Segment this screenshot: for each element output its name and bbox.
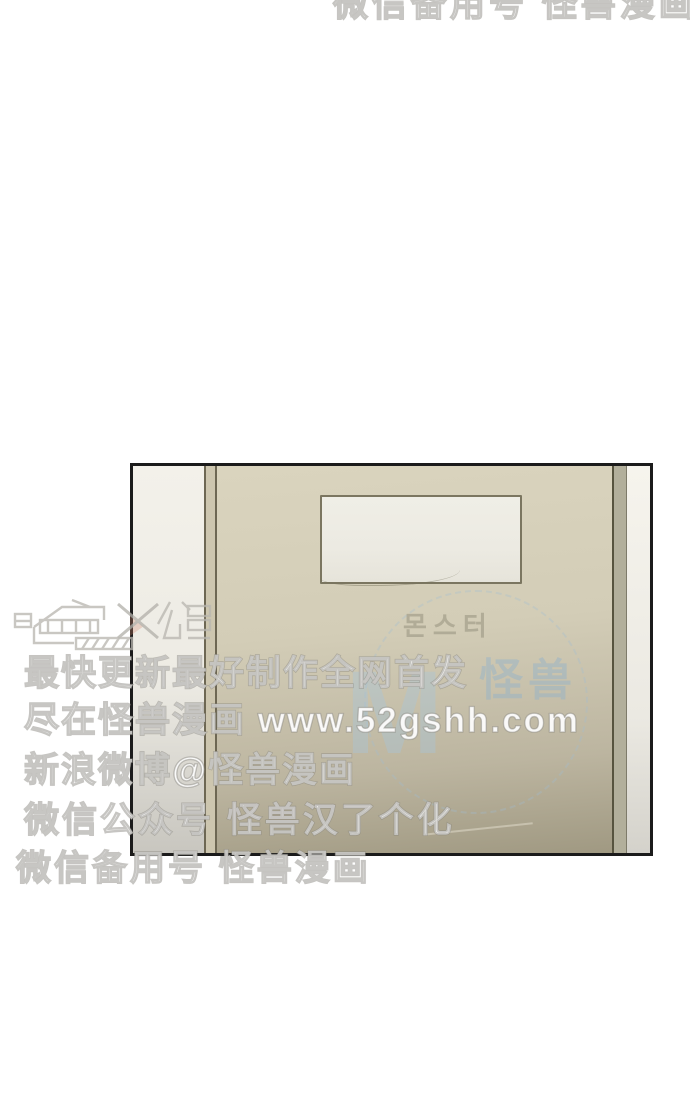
watermark-line-3: 新浪微博@怪兽漫画 — [24, 752, 356, 791]
comic-page: 微信备用号 怪兽漫画 몬스터 M 怪兽 — [0, 0, 690, 1104]
watermark-line-4: 微信公众号 怪兽汉了个化 — [24, 802, 455, 841]
watermark-line-1: 最快更新最好制作全网首发 — [24, 655, 468, 694]
watermark-line-2: 尽在怪兽漫画 www.52gshh.com — [24, 702, 580, 741]
sign-reflection-line — [320, 559, 460, 586]
right-wall — [627, 466, 650, 853]
watermark-line-5: 微信备用号 怪兽漫画 — [16, 850, 371, 889]
door-frame-right — [612, 466, 627, 853]
watermark-top-line: 微信备用号 怪兽漫画 — [333, 0, 690, 25]
door-sign-plate — [320, 495, 522, 584]
watermark-korean-title: 몬스터 — [403, 606, 493, 643]
watermark-brand-cn: 怪兽 — [479, 644, 577, 708]
scanlation-group-logo — [12, 594, 214, 656]
